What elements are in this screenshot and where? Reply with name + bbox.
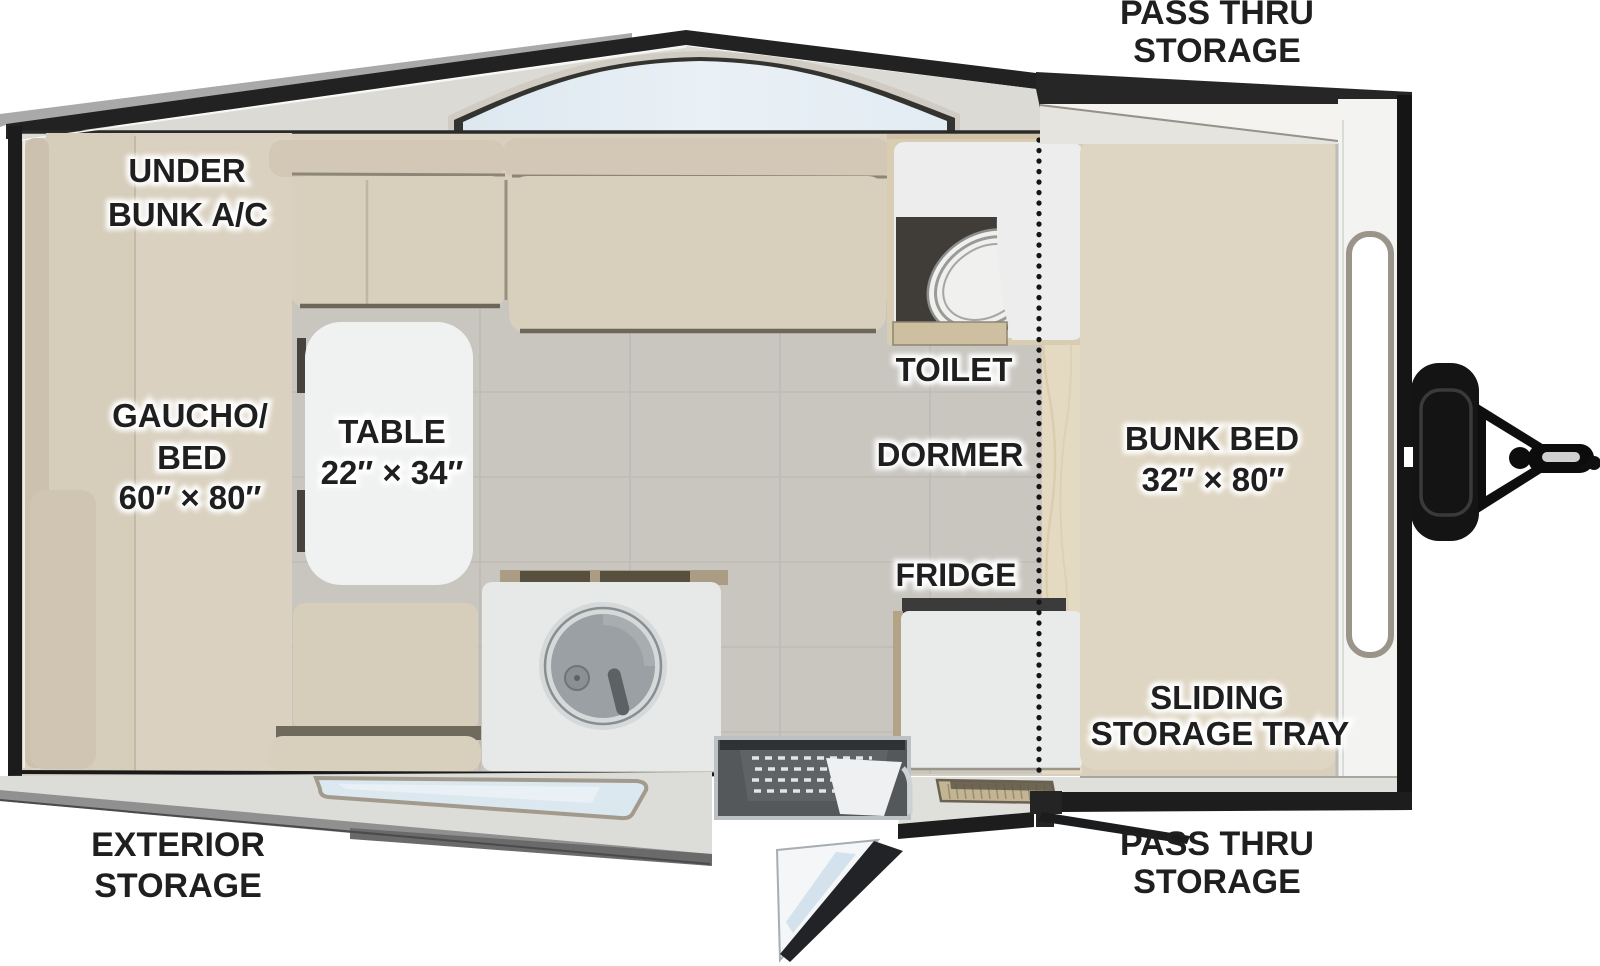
- svg-text:PASS THRU: PASS THRU: [1120, 0, 1314, 32]
- svg-text:EXTERIOR: EXTERIOR: [91, 826, 265, 864]
- svg-text:FRIDGE: FRIDGE: [896, 557, 1017, 593]
- svg-text:UNDER: UNDER: [128, 152, 246, 189]
- svg-text:BUNK BED: BUNK BED: [1125, 420, 1299, 457]
- svg-text:TOILET: TOILET: [896, 351, 1013, 388]
- svg-text:STORAGE: STORAGE: [1133, 863, 1301, 901]
- svg-text:BED: BED: [157, 439, 227, 476]
- svg-text:60″ × 80″: 60″ × 80″: [119, 479, 262, 516]
- svg-text:PASS THRU: PASS THRU: [1120, 825, 1314, 863]
- svg-text:TABLE: TABLE: [338, 413, 446, 450]
- svg-text:STORAGE TRAY: STORAGE TRAY: [1091, 715, 1350, 752]
- svg-text:BUNK A/C: BUNK A/C: [108, 196, 268, 233]
- svg-text:SLIDING: SLIDING: [1150, 679, 1284, 716]
- svg-text:32″ × 80″: 32″ × 80″: [1142, 461, 1285, 498]
- svg-text:STORAGE: STORAGE: [94, 867, 262, 905]
- svg-text:22″ × 34″: 22″ × 34″: [321, 454, 464, 491]
- svg-text:STORAGE: STORAGE: [1133, 32, 1301, 70]
- svg-text:GAUCHO/: GAUCHO/: [112, 397, 268, 434]
- svg-text:DORMER: DORMER: [877, 436, 1024, 473]
